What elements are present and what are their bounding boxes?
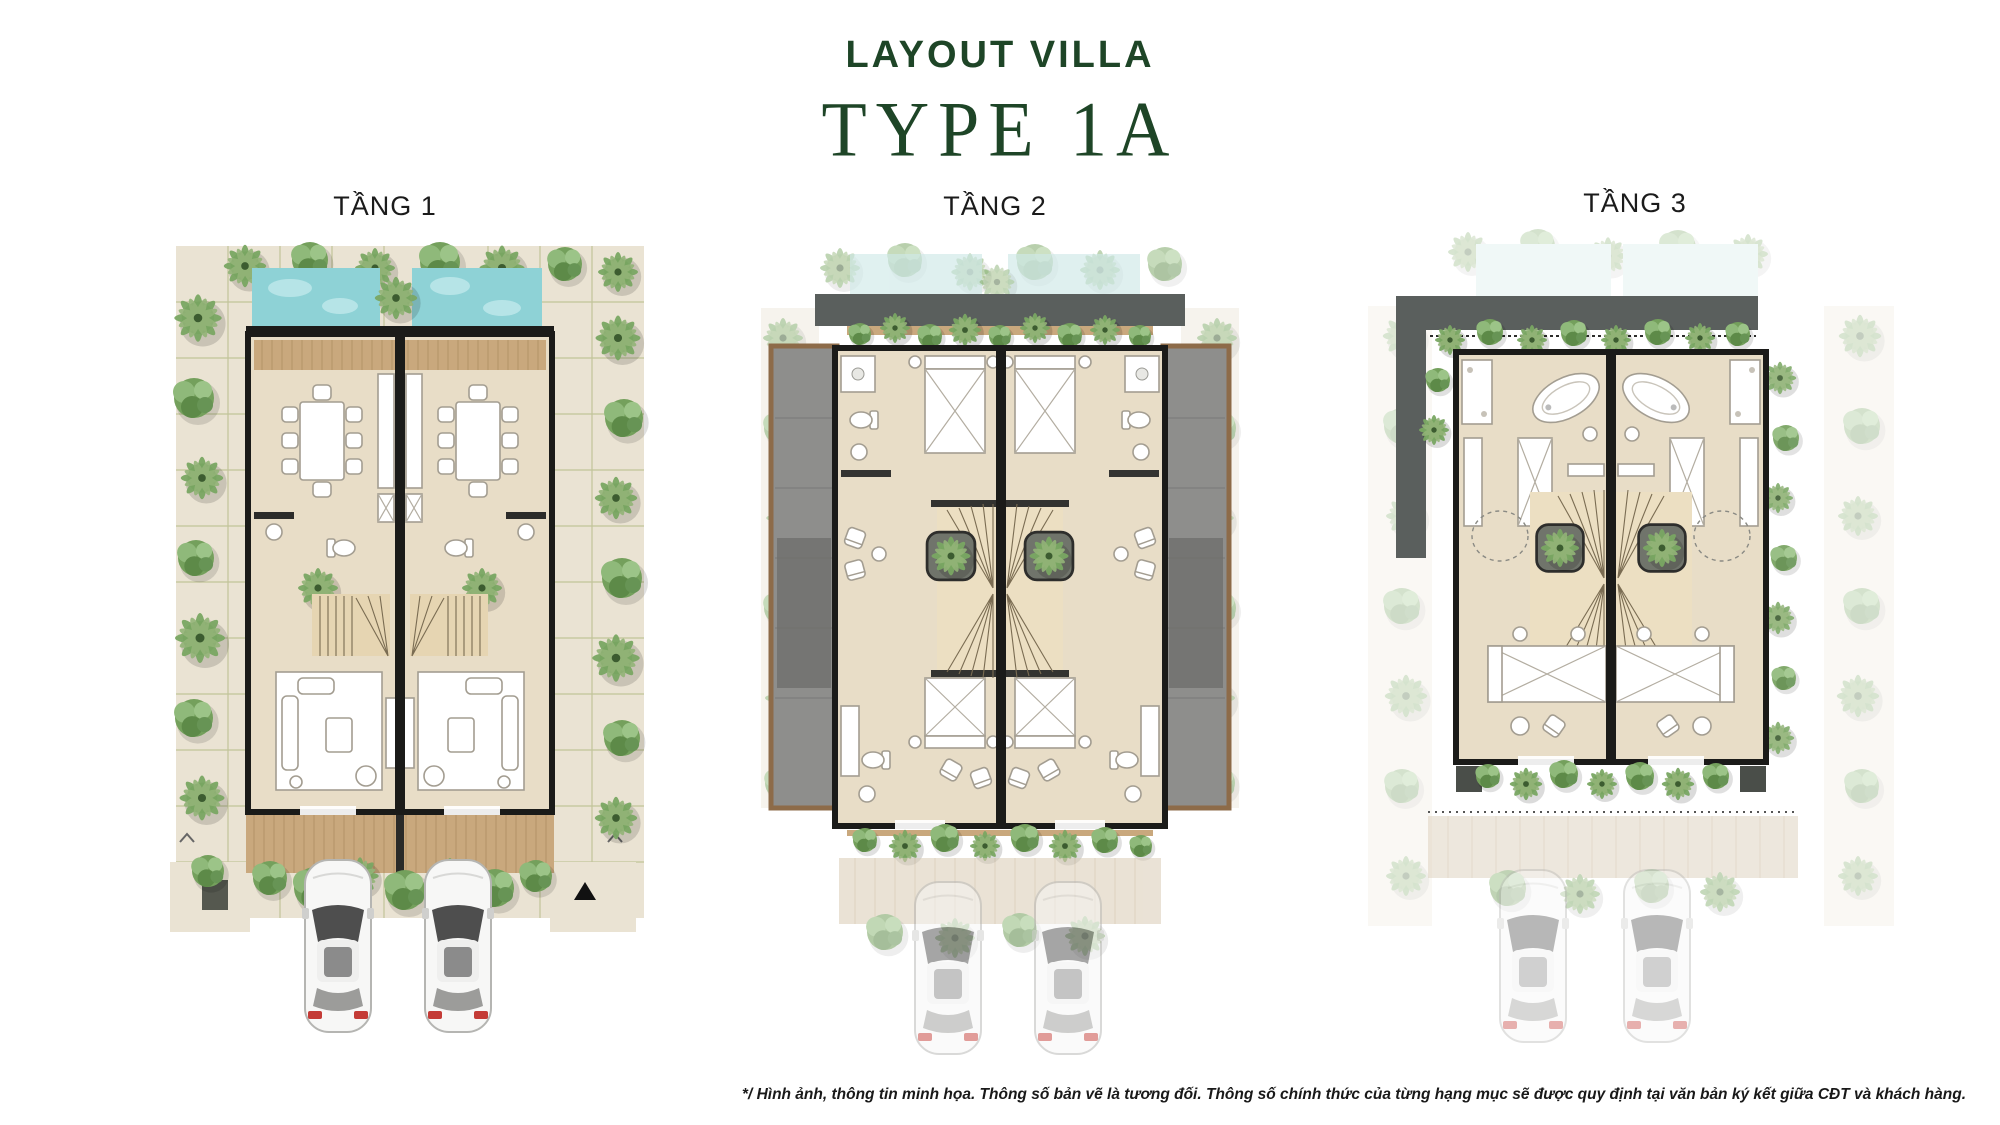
page-title: LAYOUT VILLA <box>0 34 2000 77</box>
living-room-right <box>404 672 524 790</box>
ghost-deck <box>839 858 1161 962</box>
villa-building <box>835 348 1165 829</box>
staircase-right <box>410 594 488 656</box>
floor-3-label: TẦNG 3 <box>1583 188 1687 219</box>
car-left <box>1497 870 1569 1042</box>
villa-building <box>248 334 552 815</box>
floor-2-label: TẦNG 2 <box>943 191 1047 222</box>
page-subtitle: TYPE 1A <box>0 85 2000 175</box>
disclaimer-text: */ Hình ảnh, thông tin minh họa. Thông s… <box>742 1086 1966 1104</box>
ghost-deck <box>1428 816 1798 918</box>
front-deck <box>246 815 554 873</box>
living-room-left <box>276 672 396 790</box>
floor-1-label: TẦNG 1 <box>333 191 437 222</box>
balcony-left <box>771 346 837 808</box>
car-right <box>422 860 494 1032</box>
brochure-page: LAYOUT VILLA TYPE 1A TẦNG 1 TẦNG 2 TẦNG … <box>0 0 2000 1125</box>
roof-band <box>815 294 1185 326</box>
villa-building <box>1456 352 1766 765</box>
floor-3-plan <box>1368 226 1898 1076</box>
rear-terrace-hedge <box>1428 760 1798 812</box>
floor-1-plan <box>150 226 670 1076</box>
car-left <box>302 860 374 1032</box>
staircase-left <box>312 594 390 656</box>
floor-2-plan <box>755 238 1245 1073</box>
car-right <box>1621 870 1693 1042</box>
car-right <box>1032 882 1104 1054</box>
balcony-right <box>1163 346 1229 808</box>
car-left <box>912 882 984 1054</box>
